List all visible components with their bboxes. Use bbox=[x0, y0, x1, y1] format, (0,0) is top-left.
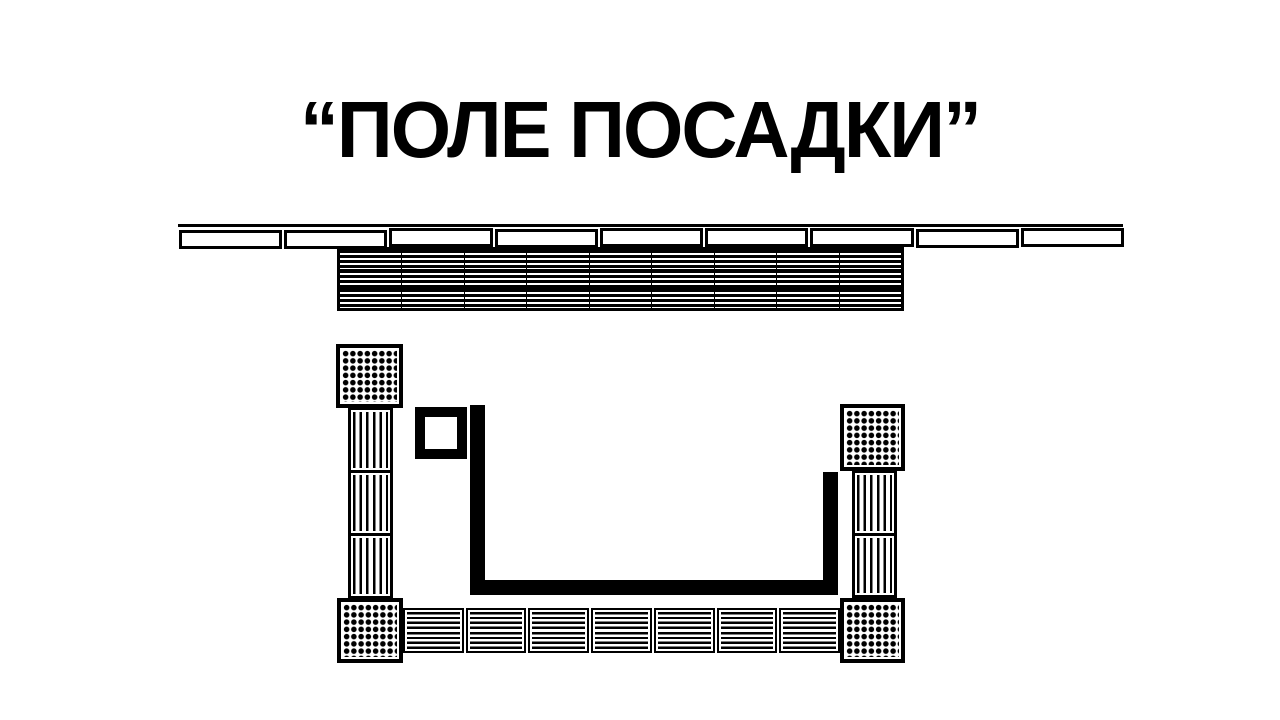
pallet-side-vertical-half bbox=[353, 538, 369, 594]
crate-cell bbox=[179, 230, 282, 249]
crate-cell bbox=[600, 228, 703, 247]
pallet-side-horizontal-half bbox=[470, 612, 523, 629]
pallet-side-vertical bbox=[852, 470, 897, 536]
pallet-side-vertical-half bbox=[373, 538, 389, 594]
pallet-cell bbox=[652, 289, 713, 308]
pallet-side-horizontal bbox=[654, 608, 715, 653]
pallet-cell bbox=[590, 250, 651, 269]
dot-block-bottom-right bbox=[840, 598, 905, 663]
pallet-cell bbox=[590, 289, 651, 308]
left-pallet-column bbox=[348, 407, 393, 599]
pallet-side-horizontal bbox=[779, 608, 840, 653]
pallet-side-horizontal bbox=[403, 608, 464, 653]
pallet-side-horizontal-half bbox=[783, 612, 836, 629]
pallet-side-horizontal bbox=[466, 608, 527, 653]
pallet-cell bbox=[465, 270, 526, 289]
pallet-cell bbox=[527, 250, 588, 269]
pallet-cell bbox=[340, 289, 401, 308]
pallet-cell bbox=[715, 250, 776, 269]
pallet-cell bbox=[777, 270, 838, 289]
pallet-cell bbox=[465, 289, 526, 308]
pallet-side-horizontal-half bbox=[407, 612, 460, 629]
pallet-cell bbox=[340, 250, 401, 269]
pallet-side-horizontal-half bbox=[721, 632, 774, 649]
planting-field-plan: “ПОЛЕ ПОСАДКИ” bbox=[0, 0, 1280, 720]
pallet-side-horizontal-half bbox=[658, 612, 711, 629]
pallet-cell bbox=[590, 270, 651, 289]
pallet-cell bbox=[402, 289, 463, 308]
pallet-side-vertical-half bbox=[877, 475, 893, 531]
page-title: “ПОЛЕ ПОСАДКИ” bbox=[19, 84, 1261, 176]
crate-cell bbox=[495, 229, 598, 248]
pallet-cell bbox=[777, 250, 838, 269]
pallet-side-horizontal-half bbox=[595, 632, 648, 649]
pallet-side-vertical-half bbox=[353, 475, 369, 531]
u-path-bottom-bar bbox=[470, 580, 838, 595]
small-square-outline bbox=[415, 407, 467, 459]
pallet-cell bbox=[402, 250, 463, 269]
pallet-side-vertical-half bbox=[353, 412, 369, 468]
pallet-grid bbox=[337, 247, 904, 311]
pallet-side-horizontal bbox=[528, 608, 589, 653]
right-pallet-column bbox=[852, 470, 897, 598]
bottom-pallet-row bbox=[403, 608, 840, 653]
pallet-cell bbox=[840, 270, 901, 289]
pallet-side-horizontal bbox=[591, 608, 652, 653]
pallet-cell bbox=[652, 250, 713, 269]
pallet-cell bbox=[777, 289, 838, 308]
pallet-cell bbox=[340, 270, 401, 289]
pallet-side-vertical-half bbox=[857, 475, 873, 531]
pallet-side-vertical-half bbox=[857, 538, 873, 594]
crate-cell bbox=[705, 228, 808, 247]
pallet-side-horizontal-half bbox=[532, 612, 585, 629]
crate-cell bbox=[916, 229, 1019, 248]
dot-block-top-left bbox=[336, 344, 403, 408]
crate-cell bbox=[810, 228, 913, 247]
pallet-side-vertical bbox=[348, 533, 393, 599]
pallet-side-horizontal-half bbox=[407, 632, 460, 649]
pallet-side-horizontal-half bbox=[721, 612, 774, 629]
crate-cell bbox=[1021, 228, 1124, 247]
pallet-cell bbox=[527, 270, 588, 289]
pallet-cell bbox=[840, 289, 901, 308]
pallet-side-vertical bbox=[852, 533, 897, 599]
pallet-side-vertical bbox=[348, 407, 393, 473]
pallet-cell bbox=[715, 289, 776, 308]
pallet-cell bbox=[402, 270, 463, 289]
pallet-cell bbox=[465, 250, 526, 269]
pallet-cell bbox=[715, 270, 776, 289]
pallet-side-horizontal-half bbox=[470, 632, 523, 649]
dot-block-bottom-left bbox=[337, 598, 403, 663]
pallet-side-vertical bbox=[348, 470, 393, 536]
pallet-side-vertical-half bbox=[373, 412, 389, 468]
pallet-side-horizontal-half bbox=[595, 612, 648, 629]
u-path-right-bar bbox=[823, 472, 838, 595]
dot-block-top-right bbox=[840, 404, 905, 471]
pallet-cell bbox=[652, 270, 713, 289]
pallet-side-horizontal-half bbox=[783, 632, 836, 649]
pallet-side-vertical-half bbox=[877, 538, 893, 594]
pallet-side-horizontal-half bbox=[658, 632, 711, 649]
pallet-side-horizontal bbox=[717, 608, 778, 653]
crate-cell bbox=[389, 228, 492, 247]
pallet-cell bbox=[840, 250, 901, 269]
pallet-cell bbox=[527, 289, 588, 308]
pallet-side-horizontal-half bbox=[532, 632, 585, 649]
u-path-left-bar bbox=[470, 405, 485, 595]
pallet-side-vertical-half bbox=[373, 475, 389, 531]
